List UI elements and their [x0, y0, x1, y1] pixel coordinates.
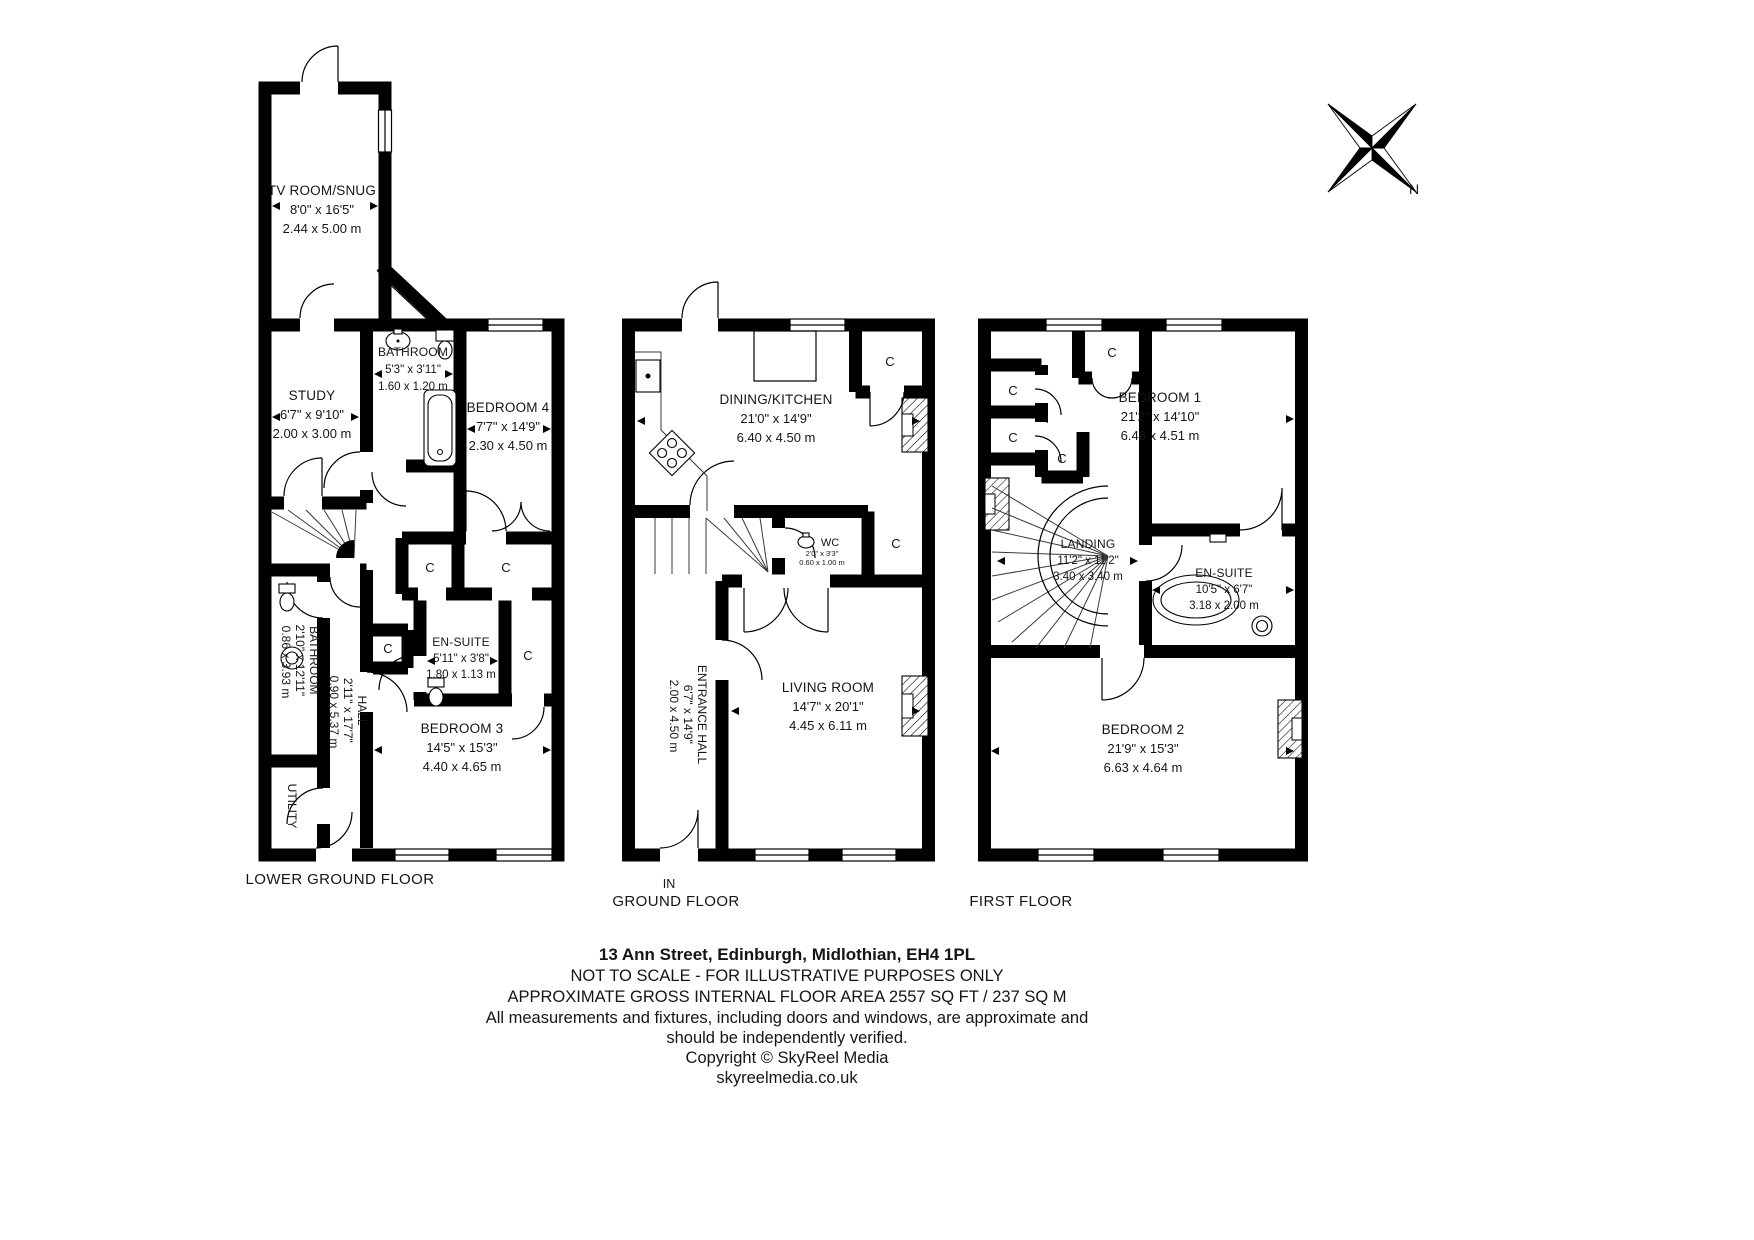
entry-in-label: IN — [663, 877, 676, 891]
room-name: BEDROOM 3 — [421, 721, 504, 736]
room-label-living: LIVING ROOM 14'7" x 20'1" 4.45 x 6.11 m — [782, 680, 874, 733]
room-dim-metric: 1.80 x 1.13 m — [426, 669, 496, 681]
closet-label: C — [1008, 430, 1017, 445]
disclaimer-line2: should be independently verified. — [666, 1029, 907, 1047]
room-name: EN-SUITE — [432, 635, 490, 649]
room-label-utility: UTILITY — [285, 784, 299, 829]
closet-label: C — [425, 560, 434, 575]
room-dim-imperial: 7'7" x 14'9" — [476, 419, 540, 434]
bathtub-icon — [424, 390, 456, 466]
closet-label: C — [383, 641, 392, 656]
closet-label: C — [501, 560, 510, 575]
closet-label: C — [1057, 451, 1066, 466]
room-label-side-bathroom: BATHROOM 2'10" x 12'11" 0.86 x 3.93 m — [279, 625, 321, 700]
closet-label: C — [1107, 345, 1116, 360]
website-link: skyreelmedia.co.uk — [716, 1069, 858, 1087]
stairs-icon — [272, 510, 356, 558]
room-label-bedroom3: BEDROOM 3 14'5" x 15'3" 4.40 x 4.65 m — [421, 721, 504, 774]
floor-first: BEDROOM 1 21'2" x 14'10" 6.46 x 4.51 m L… — [969, 319, 1302, 911]
room-label-dining-kitchen: DINING/KITCHEN 21'0" x 14'9" 6.40 x 4.50… — [719, 392, 832, 445]
room-label-bedroom2: BEDROOM 2 21'9" x 15'3" 6.63 x 4.64 m — [1102, 722, 1185, 775]
room-dim-metric: 2.00 x 3.00 m — [273, 426, 352, 441]
room-dim-imperial: 14'7" x 20'1" — [792, 699, 864, 714]
room-label-bedroom1: BEDROOM 1 21'2" x 14'10" 6.46 x 4.51 m — [1119, 390, 1202, 443]
room-name: STUDY — [289, 388, 336, 403]
floor-title-ground: GROUND FLOOR — [612, 893, 739, 910]
room-dim-imperial: 21'2" x 14'10" — [1121, 409, 1200, 424]
room-label-ensuite: EN-SUITE 5'11" x 3'8" 1.80 x 1.13 m — [426, 635, 496, 681]
room-name: WC — [821, 537, 839, 549]
room-dim-metric: 0.60 x 1.00 m — [799, 558, 844, 567]
room-dim-metric: 3.40 x 3.40 m — [1053, 571, 1123, 583]
room-dim-imperial: 14'5" x 15'3" — [426, 740, 498, 755]
room-name: TV ROOM/SNUG — [268, 183, 376, 198]
floor-title-lower: LOWER GROUND FLOOR — [246, 871, 435, 888]
room-label-bathroom: BATHROOM 5'3" x 3'11" 1.60 x 1.20 m — [378, 345, 448, 393]
room-label-landing: LANDING 11'2" x 11'2" 3.40 x 3.40 m — [1053, 537, 1123, 583]
room-dim-imperial: 5'11" x 3'8" — [433, 653, 489, 665]
room-name: BATHROOM — [378, 345, 448, 359]
sink-icon — [1252, 616, 1272, 636]
room-dim-imperial: 10'5" x 6'7" — [1196, 584, 1253, 596]
room-dim-imperial: 21'0" x 14'9" — [740, 411, 812, 426]
floorplan-page: TV ROOM/SNUG 8'0" x 16'5" 2.44 x 5.00 m … — [0, 0, 1754, 1240]
compass-rose-icon: N — [1328, 104, 1419, 197]
room-dim-imperial: 11'2" x 11'2" — [1057, 555, 1118, 567]
room-dim-imperial: 6'7" x 9'10" — [280, 407, 344, 422]
room-name: BEDROOM 2 — [1102, 722, 1185, 737]
room-dim-metric: 6.46 x 4.51 m — [1121, 428, 1200, 443]
toilet-icon — [279, 584, 295, 611]
room-name: BEDROOM 1 — [1119, 390, 1202, 405]
room-dim-metric: 2.30 x 4.50 m — [469, 438, 548, 453]
floor-title-first: FIRST FLOOR — [969, 893, 1072, 910]
room-label-ensuite-first: EN-SUITE 10'5" x 6'7" 3.18 x 2.00 m — [1189, 566, 1259, 612]
closet-label: C — [523, 648, 532, 663]
room-dim-imperial: 21'9" x 15'3" — [1107, 741, 1179, 756]
property-address: 13 Ann Street, Edinburgh, Midlothian, EH… — [599, 945, 975, 964]
closet-label: C — [891, 536, 900, 551]
room-dim-metric: 2.44 x 5.00 m — [283, 221, 362, 236]
disclaimer-line1: All measurements and fixtures, including… — [486, 1009, 1089, 1027]
north-label: N — [1409, 181, 1419, 197]
hob-icon — [649, 430, 694, 475]
room-name: BEDROOM 4 — [467, 400, 550, 415]
room-dim-metric: 6.40 x 4.50 m — [737, 430, 816, 445]
room-dim-imperial: 2'0" x 3'3" — [806, 549, 839, 558]
room-label-bedroom4: BEDROOM 4 7'7" x 14'9" 2.30 x 4.50 m — [467, 400, 550, 453]
stairs-icon — [655, 518, 768, 574]
room-dim-metric: 4.45 x 6.11 m — [789, 718, 867, 733]
room-dim-metric: 1.60 x 1.20 m — [378, 381, 448, 393]
room-name: LIVING ROOM — [782, 680, 874, 695]
footer: 13 Ann Street, Edinburgh, Midlothian, EH… — [486, 945, 1089, 1087]
room-dim-metric: 4.40 x 4.65 m — [423, 759, 502, 774]
closet-label: C — [885, 354, 894, 369]
toilet-icon — [428, 678, 444, 706]
room-name: LANDING — [1061, 537, 1116, 551]
scale-note: NOT TO SCALE - FOR ILLUSTRATIVE PURPOSES… — [570, 967, 1003, 985]
room-name: DINING/KITCHEN — [719, 392, 832, 407]
room-label-tv: TV ROOM/SNUG 8'0" x 16'5" 2.44 x 5.00 m — [268, 183, 376, 236]
room-dim-metric: 3.18 x 2.00 m — [1189, 600, 1259, 612]
room-name: EN-SUITE — [1195, 566, 1253, 580]
floor-ground: DINING/KITCHEN 21'0" x 14'9" 6.40 x 4.50… — [612, 282, 928, 910]
floorplan-canvas: TV ROOM/SNUG 8'0" x 16'5" 2.44 x 5.00 m … — [0, 0, 1754, 1240]
copyright-line: Copyright © SkyReel Media — [686, 1049, 890, 1067]
room-dim-imperial: 8'0" x 16'5" — [290, 202, 354, 217]
room-dim-imperial: 5'3" x 3'11" — [385, 364, 441, 376]
room-label-study: STUDY 6'7" x 9'10" 2.00 x 3.00 m — [273, 388, 352, 441]
room-label-entrance-hall: ENTRANCE HALL 6'7" x 14'9" 2.00 x 4.50 m — [667, 665, 709, 767]
sink-icon — [798, 533, 814, 548]
floor-lower-ground: TV ROOM/SNUG 8'0" x 16'5" 2.44 x 5.00 m … — [246, 46, 558, 888]
floor-area-note: APPROXIMATE GROSS INTERNAL FLOOR AREA 25… — [507, 988, 1066, 1006]
room-dim-metric: 6.63 x 4.64 m — [1104, 760, 1183, 775]
closet-label: C — [1008, 383, 1017, 398]
